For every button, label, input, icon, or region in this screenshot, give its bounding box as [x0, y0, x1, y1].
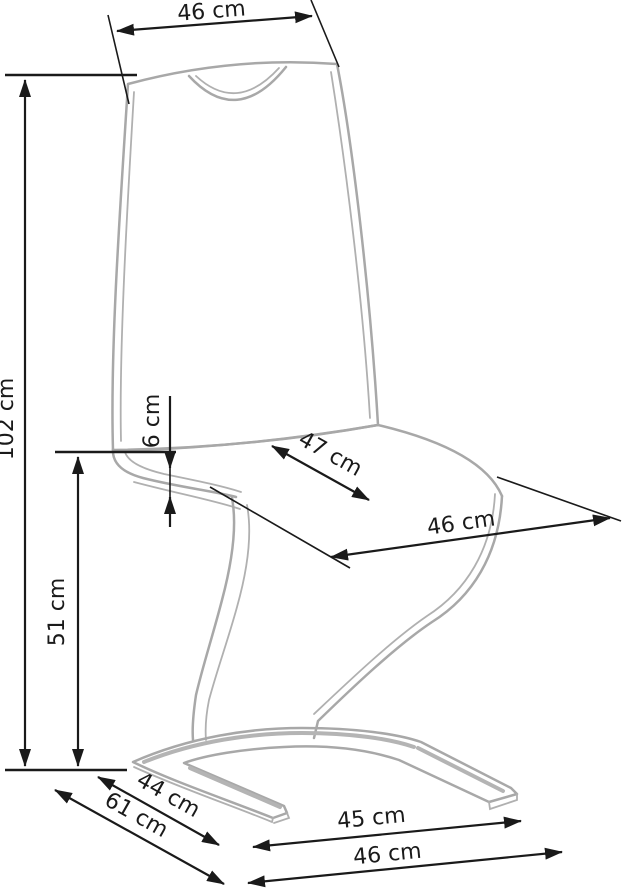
dimension-label: 102 cm	[0, 378, 19, 461]
extension-line	[497, 477, 621, 521]
chair-dimension-diagram: 46 cm 102 cm 51 cm 6 cm 47 cm 46 cm 44 c…	[0, 0, 625, 890]
diagram-svg: 46 cm 102 cm 51 cm 6 cm 47 cm 46 cm 44 c…	[0, 0, 625, 890]
dimension-label: 6 cm	[140, 394, 165, 449]
seat-front-drop-left-outer	[193, 498, 234, 740]
dimension-label: 51 cm	[45, 578, 70, 647]
dimension-seat-width: 46 cm	[210, 477, 621, 568]
dimension-seat-thickness: 6 cm	[140, 394, 170, 527]
dimension-base-front-width: 45 cm	[253, 803, 521, 847]
dimension-label: 47 cm	[294, 427, 366, 482]
chair-seat	[113, 425, 502, 740]
base-right-leg-stripe	[418, 748, 503, 791]
seat-front-drop-left-inner	[206, 505, 250, 740]
backrest-right-piping	[331, 72, 370, 418]
dimension-total-height: 102 cm	[0, 75, 137, 766]
seat-left-edge-outer	[113, 449, 236, 497]
seat-right-edge	[378, 425, 502, 496]
extension-line	[311, 0, 339, 67]
dimension-base-total-width: 46 cm	[248, 839, 562, 883]
chair-backrest	[112, 62, 378, 451]
dimension-label: 45 cm	[336, 803, 407, 834]
extension-line	[108, 15, 129, 104]
dimension-label: 46 cm	[352, 839, 423, 871]
backrest-left-piping	[121, 92, 134, 441]
dimension-seat-height: 51 cm	[5, 452, 176, 770]
